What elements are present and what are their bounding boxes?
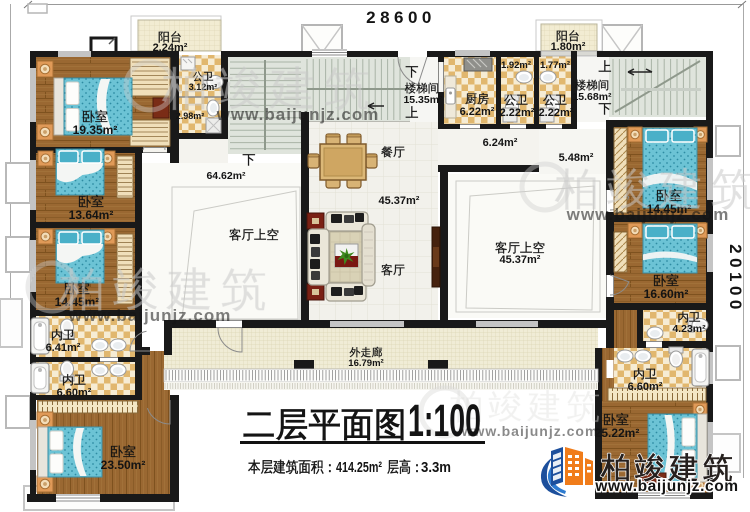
- svg-text:23.50m²: 23.50m²: [101, 458, 146, 472]
- svg-text:25.22m²: 25.22m²: [595, 426, 640, 440]
- svg-text:2.98m²: 2.98m²: [176, 111, 205, 121]
- svg-text:6.22m²: 6.22m²: [460, 106, 495, 118]
- svg-text:2.24m²: 2.24m²: [153, 42, 188, 54]
- svg-text:1.77m²: 1.77m²: [540, 60, 570, 71]
- svg-text:2.22m²: 2.22m²: [539, 107, 574, 119]
- svg-text:1.92m²: 1.92m²: [501, 60, 531, 71]
- svg-text:1.80m²: 1.80m²: [551, 41, 586, 53]
- svg-text:www.baijunjz.com: www.baijunjz.com: [68, 306, 232, 325]
- svg-text:4.23m²: 4.23m²: [672, 323, 706, 335]
- svg-text:3.3m: 3.3m: [421, 459, 451, 476]
- svg-text:www.baijunjz.com: www.baijunjz.com: [461, 423, 599, 439]
- svg-text:6.24m²: 6.24m²: [483, 137, 518, 149]
- svg-text:20100: 20100: [726, 244, 745, 314]
- svg-text:5.48m²: 5.48m²: [559, 152, 594, 164]
- svg-text:www.baijunjz.com: www.baijunjz.com: [566, 205, 730, 224]
- svg-text:414.25m²: 414.25m²: [336, 459, 382, 476]
- svg-text:16.60m²: 16.60m²: [644, 287, 689, 301]
- svg-text:13.64m²: 13.64m²: [69, 208, 114, 222]
- svg-text:45.37m²: 45.37m²: [379, 195, 420, 207]
- svg-text:15.35m²: 15.35m²: [403, 94, 443, 106]
- svg-text:2.22m²: 2.22m²: [500, 107, 535, 119]
- svg-text:28600: 28600: [366, 8, 436, 27]
- svg-text:45.37m²: 45.37m²: [500, 254, 541, 266]
- svg-text:www.baijunjz.com: www.baijunjz.com: [594, 478, 738, 495]
- svg-text:6.60m²: 6.60m²: [57, 387, 92, 399]
- svg-text:19.35m²: 19.35m²: [73, 123, 118, 137]
- svg-text:64.62m²: 64.62m²: [206, 170, 246, 182]
- svg-text:6.41m²: 6.41m²: [46, 342, 81, 354]
- svg-text:www.baijunjz.com: www.baijunjz.com: [216, 105, 380, 124]
- svg-text:1:100: 1:100: [408, 395, 481, 446]
- svg-text:16.79m²: 16.79m²: [348, 358, 383, 369]
- svg-text:15.68m²: 15.68m²: [572, 91, 612, 103]
- svg-text:6.60m²: 6.60m²: [628, 381, 663, 393]
